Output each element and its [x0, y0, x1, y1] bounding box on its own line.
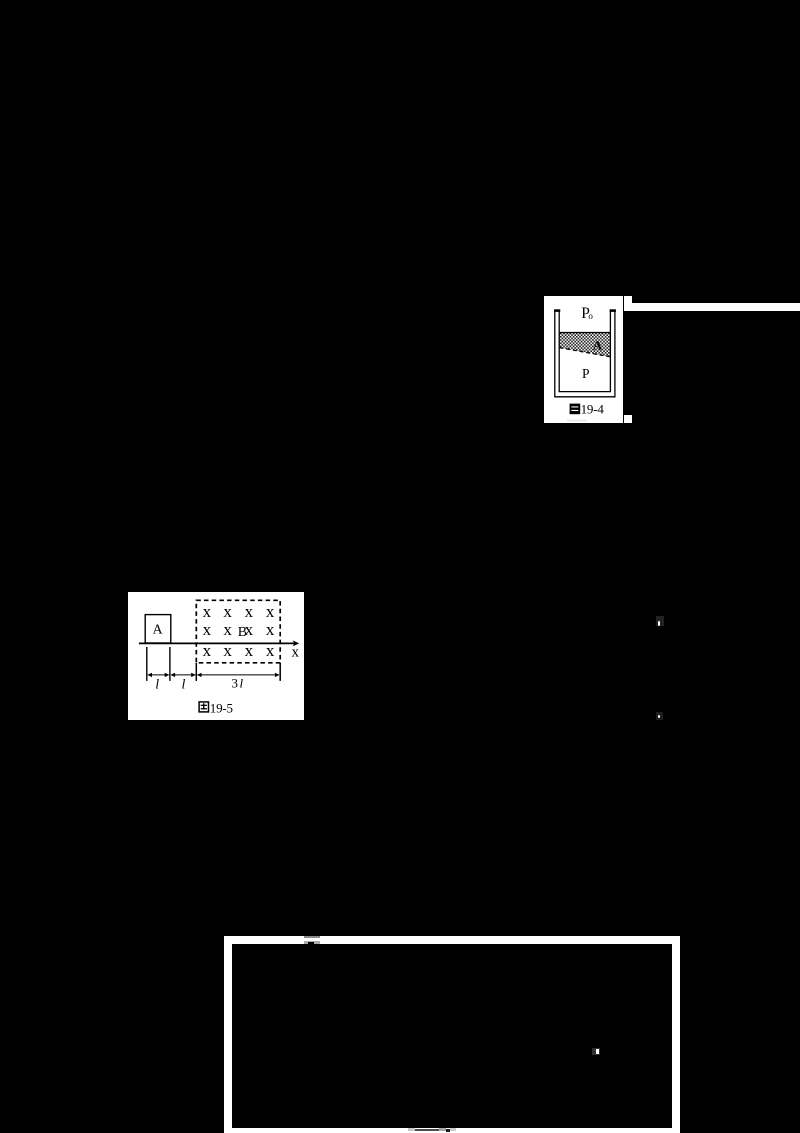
svg-text:19-4: 19-4: [581, 401, 605, 416]
svg-text:x: x: [292, 645, 300, 661]
svg-text:l: l: [182, 678, 186, 693]
svg-text:3l: 3l: [232, 676, 244, 691]
svg-text:B: B: [238, 625, 247, 640]
svg-text:o: o: [588, 311, 593, 321]
svg-text:A: A: [152, 623, 163, 638]
svg-text:19-5: 19-5: [210, 701, 233, 716]
svg-text:A: A: [593, 337, 603, 352]
svg-text:P: P: [582, 366, 590, 381]
svg-text:l: l: [155, 678, 159, 693]
